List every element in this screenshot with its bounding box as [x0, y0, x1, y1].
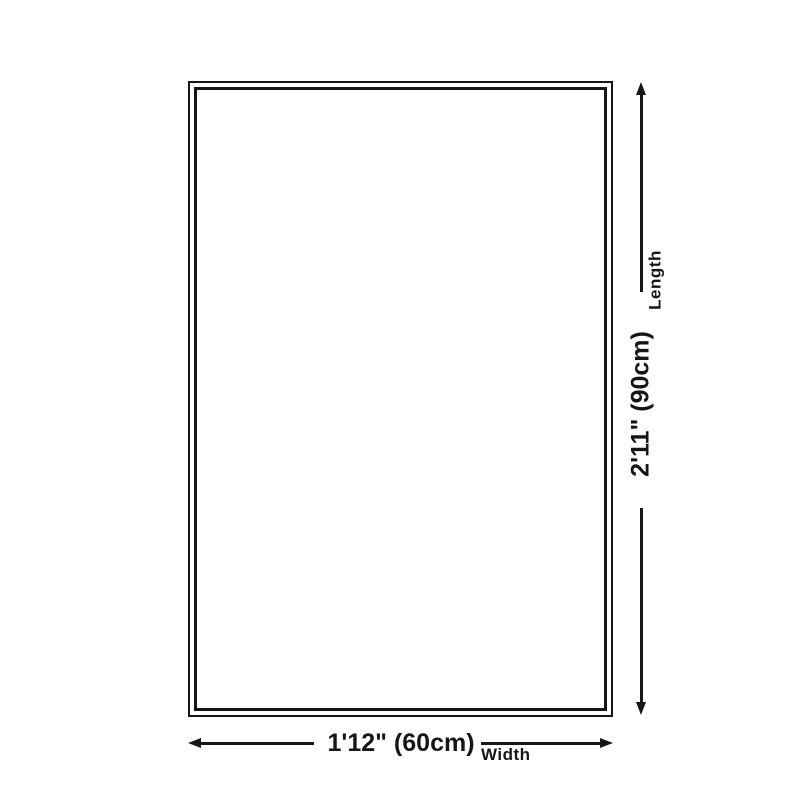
product-rectangle-inner-border — [194, 87, 607, 711]
width-arrow-line-left — [199, 742, 314, 745]
product-rectangle — [188, 81, 613, 717]
length-arrow-down-icon — [636, 702, 646, 715]
length-arrow-line-lower — [640, 508, 643, 707]
length-value: 2'11" (90cm) — [629, 331, 654, 477]
width-label: Width — [481, 746, 531, 763]
length-arrow-line-upper — [640, 93, 643, 292]
width-value: 1'12" (60cm) — [327, 731, 474, 756]
length-label: Length — [647, 250, 664, 310]
dimension-diagram: Length 2'11" (90cm) 1'12" (60cm) Width — [0, 0, 800, 800]
width-arrow-right-icon — [600, 738, 613, 748]
